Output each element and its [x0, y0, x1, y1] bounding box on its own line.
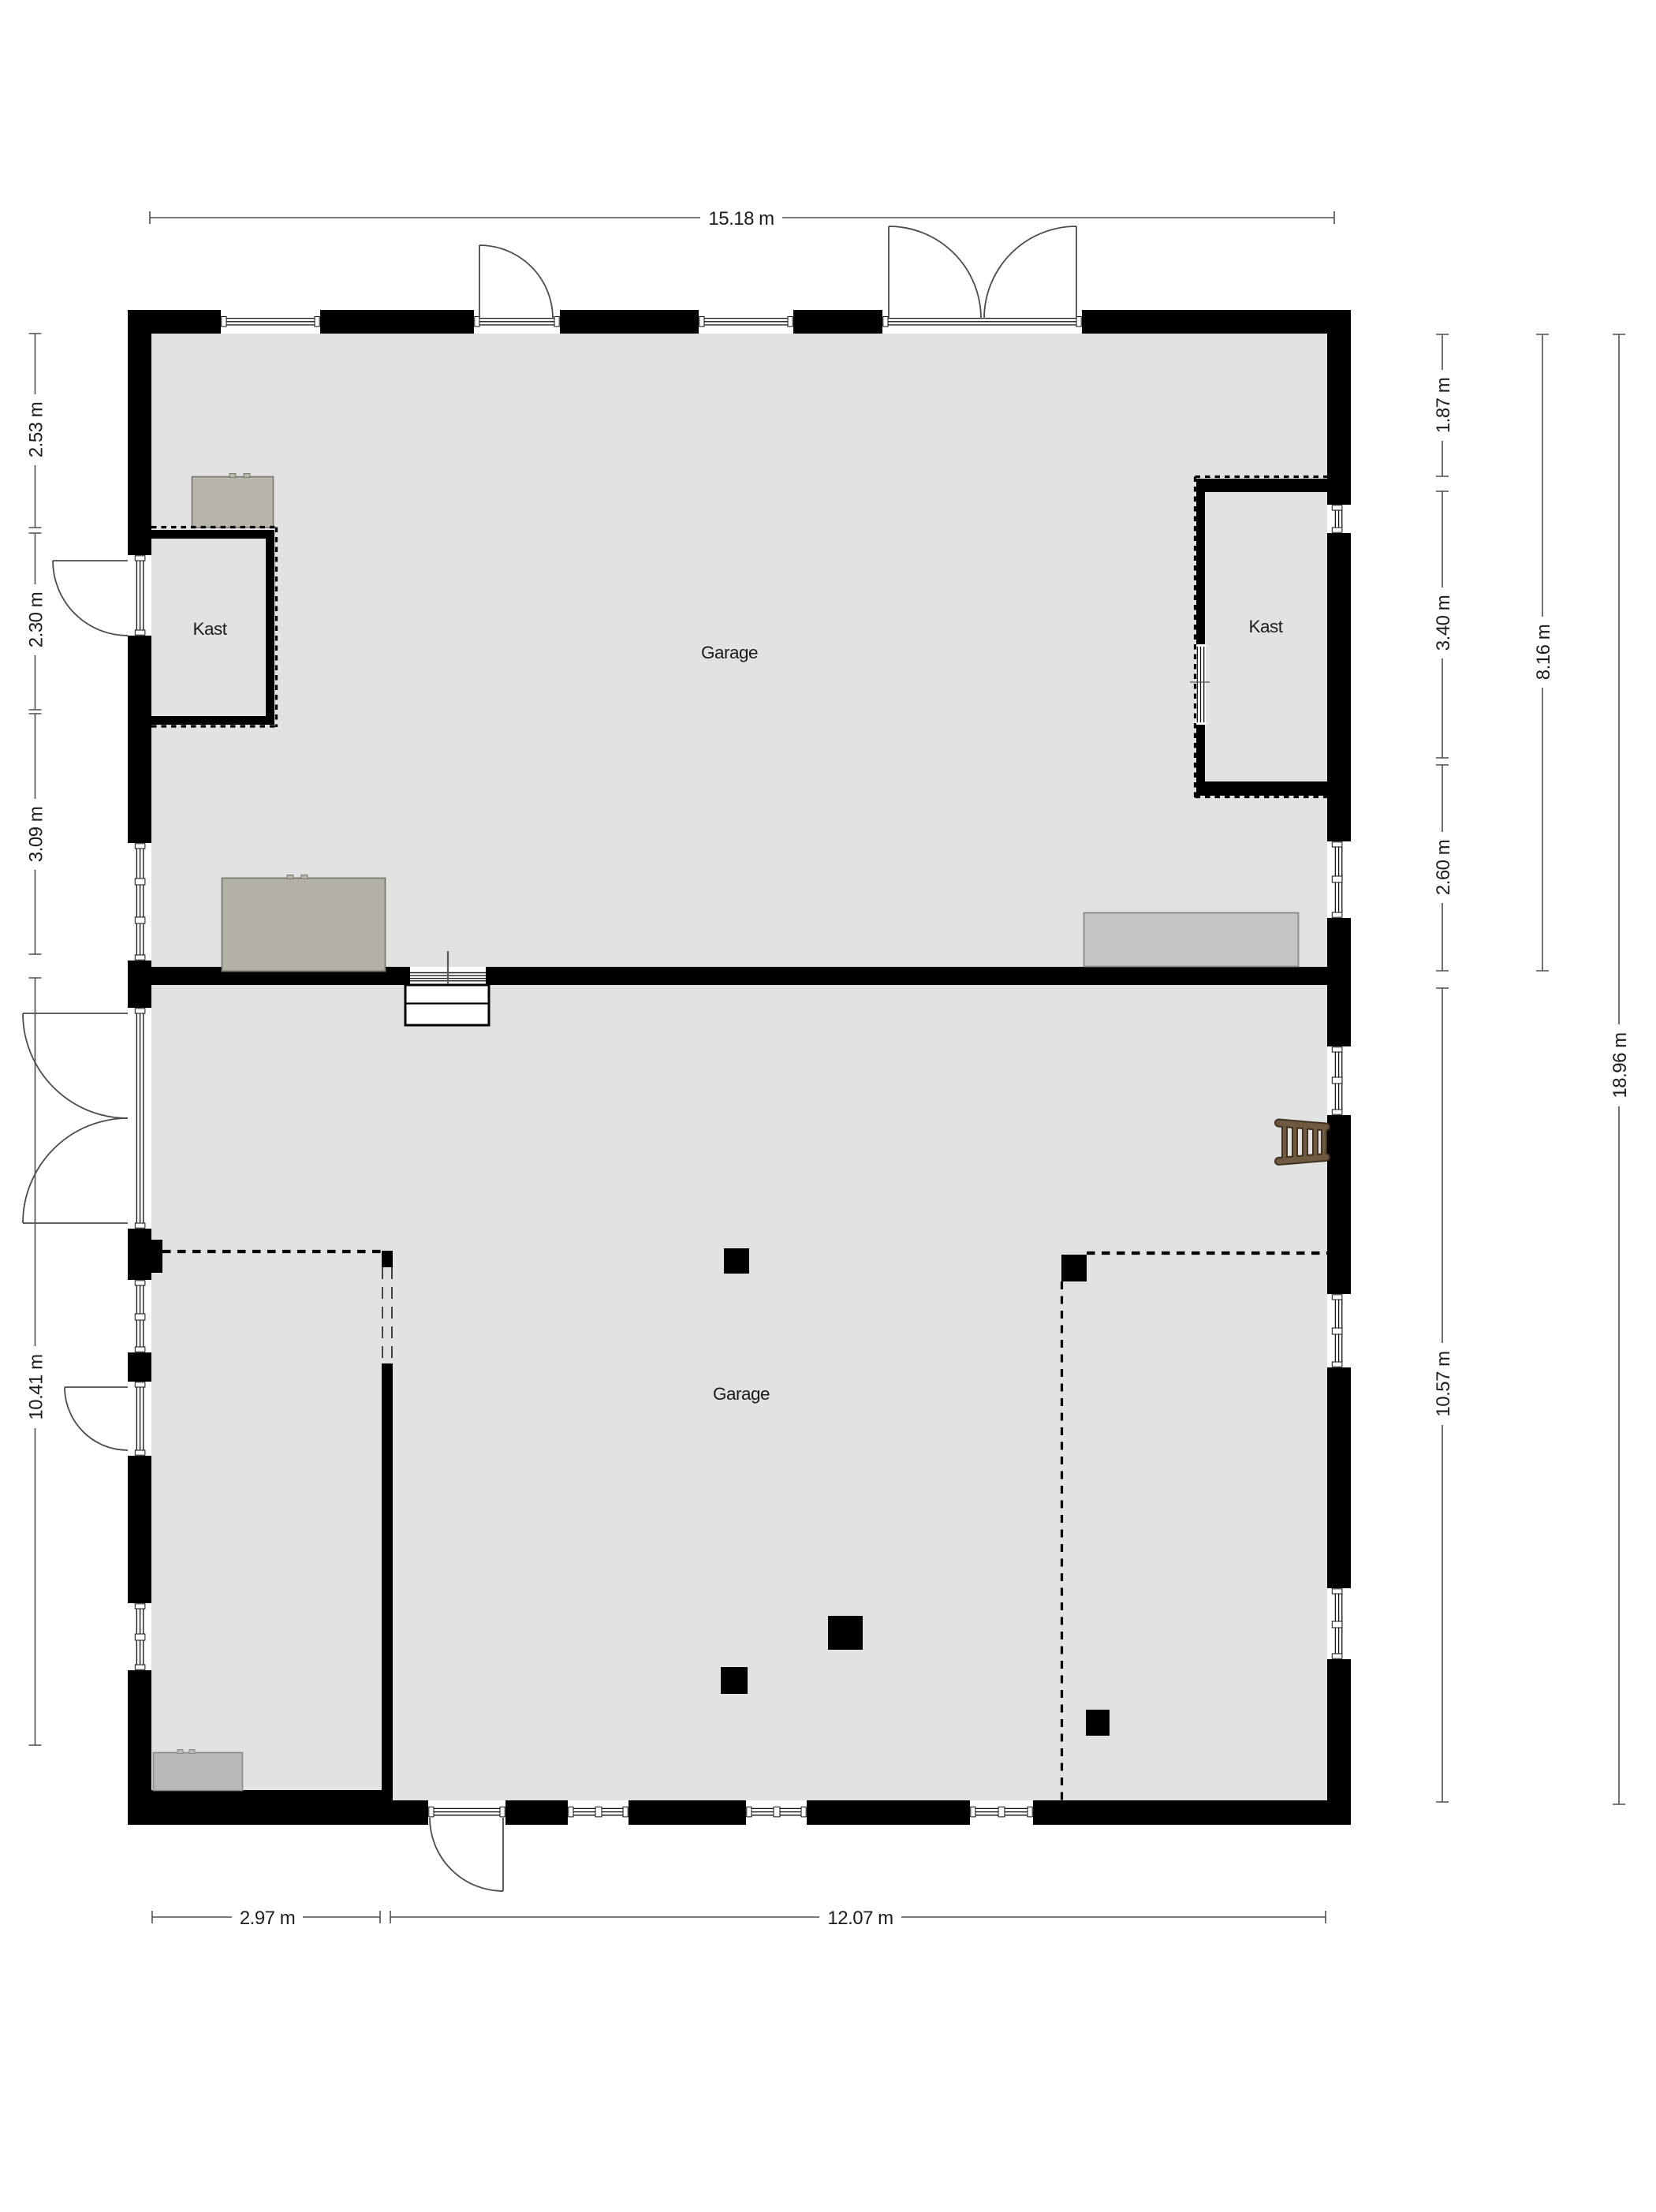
svg-text:15.18 m: 15.18 m: [708, 208, 774, 229]
svg-text:3.40 m: 3.40 m: [1433, 595, 1454, 651]
svg-text:Garage: Garage: [701, 643, 758, 662]
svg-text:2.53 m: 2.53 m: [26, 402, 47, 457]
svg-text:2.60 m: 2.60 m: [1433, 840, 1454, 895]
svg-text:2.30 m: 2.30 m: [26, 592, 47, 647]
svg-text:8.16 m: 8.16 m: [1533, 625, 1554, 680]
svg-text:10.41 m: 10.41 m: [26, 1354, 47, 1419]
svg-text:Kast: Kast: [1248, 617, 1283, 636]
svg-text:1.87 m: 1.87 m: [1433, 378, 1454, 433]
svg-text:10.57 m: 10.57 m: [1433, 1351, 1454, 1416]
svg-text:3.09 m: 3.09 m: [26, 807, 47, 862]
svg-text:Kast: Kast: [192, 619, 227, 639]
svg-text:12.07 m: 12.07 m: [827, 1908, 893, 1929]
svg-text:2.97 m: 2.97 m: [240, 1908, 295, 1929]
svg-text:Garage: Garage: [713, 1384, 770, 1404]
svg-text:18.96 m: 18.96 m: [1609, 1032, 1631, 1098]
